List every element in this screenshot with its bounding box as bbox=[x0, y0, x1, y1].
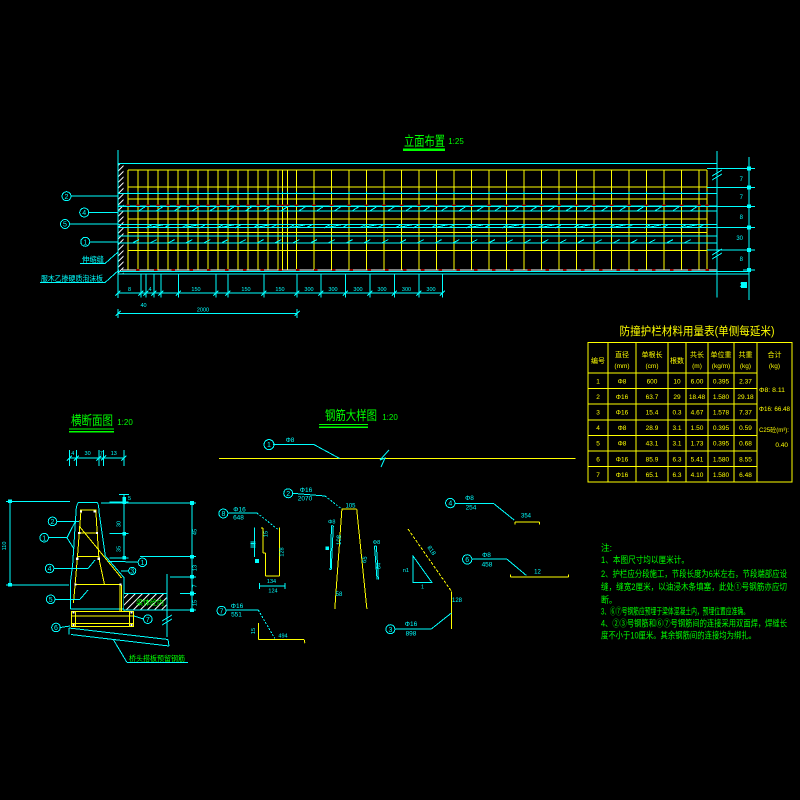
svg-text:6: 6 bbox=[54, 625, 58, 632]
svg-text:18.48: 18.48 bbox=[689, 394, 706, 401]
svg-text:Φ16: Φ16 bbox=[405, 621, 418, 628]
svg-text:1: 1 bbox=[421, 585, 424, 591]
svg-text:Φ8: Φ8 bbox=[373, 540, 380, 546]
svg-text:300: 300 bbox=[426, 287, 435, 293]
svg-text:0.395: 0.395 bbox=[713, 378, 730, 385]
svg-text:断。: 断。 bbox=[601, 594, 617, 605]
svg-text:15: 15 bbox=[251, 628, 257, 634]
svg-text:Φ8: Φ8 bbox=[465, 495, 474, 502]
svg-text:5.41: 5.41 bbox=[691, 456, 704, 463]
svg-text:2: 2 bbox=[65, 194, 69, 201]
svg-text:85.9: 85.9 bbox=[646, 456, 659, 463]
svg-text:35: 35 bbox=[117, 546, 123, 552]
svg-text:4.10: 4.10 bbox=[691, 472, 704, 479]
svg-text:30: 30 bbox=[85, 451, 91, 457]
svg-text:5: 5 bbox=[596, 441, 600, 448]
svg-text:8.55: 8.55 bbox=[739, 456, 752, 463]
svg-text:1: 1 bbox=[42, 535, 46, 542]
svg-text:1: 1 bbox=[596, 378, 600, 385]
svg-text:Φ16: Φ16 bbox=[616, 410, 629, 417]
svg-text:Φ16: Φ16 bbox=[231, 603, 244, 610]
svg-text:防撞护栏材料用量表(单侧每延米): 防撞护栏材料用量表(单侧每延米) bbox=[620, 324, 775, 338]
svg-text:(mm): (mm) bbox=[614, 363, 629, 370]
svg-text:124: 124 bbox=[268, 589, 277, 595]
svg-text:5: 5 bbox=[63, 222, 67, 229]
svg-text:6: 6 bbox=[596, 456, 600, 463]
svg-text:7: 7 bbox=[596, 472, 600, 479]
svg-text:缝，缝宽2厘米，以油浸木条填塞，此处①号钢筋亦应切: 缝，缝宽2厘米，以油浸木条填塞，此处①号钢筋亦应切 bbox=[601, 581, 787, 592]
svg-text:Φ8: Φ8 bbox=[618, 425, 627, 432]
svg-text:(kg): (kg) bbox=[769, 363, 780, 370]
svg-text:254: 254 bbox=[466, 505, 477, 512]
svg-text:4: 4 bbox=[448, 501, 452, 508]
svg-text:5: 5 bbox=[128, 496, 131, 502]
svg-text:40: 40 bbox=[140, 303, 146, 309]
svg-text:3、⑥⑦号钢筋应预埋于梁体混凝土内，预埋位置应准确。: 3、⑥⑦号钢筋应预埋于梁体混凝土内，预埋位置应准确。 bbox=[601, 606, 749, 617]
svg-text:0.40: 0.40 bbox=[775, 442, 788, 449]
svg-text:128: 128 bbox=[452, 598, 463, 604]
svg-text:0.59: 0.59 bbox=[739, 425, 752, 432]
svg-text:551: 551 bbox=[231, 612, 242, 619]
svg-text:Φ16: Φ16 bbox=[616, 472, 629, 479]
svg-text:29: 29 bbox=[673, 394, 681, 401]
svg-text:(cm): (cm) bbox=[646, 363, 659, 370]
svg-text:桥头搭板预留钢筋: 桥头搭板预留钢筋 bbox=[129, 653, 185, 663]
svg-text:30: 30 bbox=[117, 521, 123, 527]
svg-text:2: 2 bbox=[596, 394, 600, 401]
svg-text:10: 10 bbox=[673, 378, 681, 385]
svg-text:4: 4 bbox=[71, 451, 74, 457]
svg-text:编号: 编号 bbox=[591, 356, 605, 365]
svg-text:898: 898 bbox=[406, 631, 417, 638]
svg-text:7: 7 bbox=[220, 608, 224, 615]
svg-text:8: 8 bbox=[221, 511, 225, 518]
svg-text:1.580: 1.580 bbox=[713, 456, 730, 463]
svg-text:Φ16: Φ16 bbox=[300, 487, 313, 494]
svg-text:1: 1 bbox=[83, 239, 87, 246]
svg-text:1: 1 bbox=[140, 560, 144, 567]
svg-text:6.3: 6.3 bbox=[672, 472, 681, 479]
svg-text:84: 84 bbox=[376, 563, 382, 569]
svg-text:7.37: 7.37 bbox=[739, 410, 752, 417]
svg-text:1:20: 1:20 bbox=[382, 413, 398, 422]
svg-text:Φ8: Φ8 bbox=[328, 520, 335, 526]
svg-text:600: 600 bbox=[647, 378, 658, 385]
svg-text:150: 150 bbox=[191, 287, 200, 293]
svg-text:2: 2 bbox=[51, 519, 55, 526]
svg-text:1.50: 1.50 bbox=[691, 425, 704, 432]
svg-text:45: 45 bbox=[193, 529, 199, 535]
svg-text:1: 1 bbox=[267, 442, 271, 449]
svg-text:12: 12 bbox=[534, 570, 541, 576]
svg-text:Φ16: Φ16 bbox=[616, 456, 629, 463]
svg-text:4: 4 bbox=[596, 425, 600, 432]
svg-text:6.48: 6.48 bbox=[739, 472, 752, 479]
svg-text:648: 648 bbox=[233, 515, 244, 522]
svg-text:15.4: 15.4 bbox=[646, 410, 659, 417]
svg-text:4、②③号钢筋和⑥⑦号钢筋间的连接采用双面焊，焊缝长: 4、②③号钢筋和⑥⑦号钢筋间的连接采用双面焊，焊缝长 bbox=[601, 618, 787, 629]
svg-text:注:: 注: bbox=[601, 542, 612, 553]
svg-text:7: 7 bbox=[146, 617, 150, 624]
svg-text:2、护栏应分段施工，节段长度为6米左右，节段端部应设: 2、护栏应分段施工，节段长度为6米左右，节段端部应设 bbox=[601, 568, 787, 579]
svg-text:28.9: 28.9 bbox=[646, 425, 659, 432]
svg-text:3: 3 bbox=[130, 569, 134, 576]
svg-text:Φ16: 66.48: Φ16: 66.48 bbox=[759, 406, 790, 413]
svg-text:0.395: 0.395 bbox=[713, 425, 730, 432]
svg-text:1.73: 1.73 bbox=[691, 441, 704, 448]
svg-text:Φ8: Φ8 bbox=[286, 437, 295, 444]
svg-text:6.00: 6.00 bbox=[691, 378, 704, 385]
svg-text:合计: 合计 bbox=[768, 350, 782, 359]
svg-text:300: 300 bbox=[328, 287, 337, 293]
svg-text:108: 108 bbox=[337, 534, 343, 545]
svg-text:494: 494 bbox=[278, 634, 287, 640]
svg-text:29.18: 29.18 bbox=[737, 394, 754, 401]
svg-text:300: 300 bbox=[304, 287, 313, 293]
svg-text:1.580: 1.580 bbox=[713, 472, 730, 479]
svg-text:1.578: 1.578 bbox=[713, 410, 730, 417]
svg-text:1、本图尺寸均以厘米计。: 1、本图尺寸均以厘米计。 bbox=[601, 554, 689, 565]
svg-text:Φ16: Φ16 bbox=[616, 394, 629, 401]
svg-text:2000: 2000 bbox=[197, 308, 209, 314]
svg-text:300: 300 bbox=[402, 287, 411, 293]
svg-text:2.37: 2.37 bbox=[739, 378, 752, 385]
svg-text:服木乙掺硬质泡沫板: 服木乙掺硬质泡沫板 bbox=[41, 273, 103, 283]
svg-text:2070: 2070 bbox=[298, 496, 313, 503]
svg-text:直径: 直径 bbox=[615, 350, 629, 359]
svg-text:30: 30 bbox=[736, 236, 743, 242]
svg-text:150: 150 bbox=[275, 287, 284, 293]
svg-text:(kg/m): (kg/m) bbox=[712, 363, 730, 370]
svg-text:Φ8: Φ8 bbox=[618, 378, 627, 385]
svg-text:单根长: 单根长 bbox=[642, 350, 663, 359]
svg-text:Φ8: Φ8 bbox=[482, 552, 491, 559]
svg-text:横断面图: 横断面图 bbox=[71, 413, 113, 428]
svg-text:2: 2 bbox=[286, 491, 290, 498]
svg-text:15: 15 bbox=[193, 600, 199, 606]
svg-text:(m): (m) bbox=[692, 363, 702, 370]
svg-text:5: 5 bbox=[49, 597, 53, 604]
svg-text:0.3: 0.3 bbox=[672, 410, 681, 417]
svg-text:共长: 共长 bbox=[690, 350, 704, 359]
svg-text:3: 3 bbox=[596, 410, 600, 417]
svg-text:n1: n1 bbox=[403, 568, 409, 574]
svg-text:150: 150 bbox=[241, 287, 250, 293]
svg-text:65.1: 65.1 bbox=[646, 472, 659, 479]
svg-text:58: 58 bbox=[336, 592, 343, 598]
svg-text:300: 300 bbox=[377, 287, 386, 293]
svg-text:458: 458 bbox=[482, 562, 493, 569]
svg-text:1:25: 1:25 bbox=[448, 137, 464, 146]
svg-text:共重: 共重 bbox=[739, 350, 753, 359]
svg-text:43.1: 43.1 bbox=[646, 441, 659, 448]
svg-text:(kg): (kg) bbox=[740, 363, 751, 370]
svg-text:6.3: 6.3 bbox=[672, 456, 681, 463]
svg-text:13: 13 bbox=[193, 565, 199, 571]
svg-text:3.1: 3.1 bbox=[672, 441, 681, 448]
svg-text:度不小于10厘米。其余钢筋间的连接均为绑扎。: 度不小于10厘米。其余钢筋间的连接均为绑扎。 bbox=[601, 630, 756, 641]
svg-text:伸缩缝: 伸缩缝 bbox=[82, 254, 104, 264]
svg-text:根数: 根数 bbox=[670, 356, 684, 365]
svg-text:Φ8: 8.11: Φ8: 8.11 bbox=[759, 387, 785, 394]
svg-text:354: 354 bbox=[521, 514, 532, 520]
svg-text:4.67: 4.67 bbox=[691, 410, 704, 417]
svg-text:0.395: 0.395 bbox=[713, 441, 730, 448]
svg-text:13: 13 bbox=[111, 451, 117, 457]
svg-text:立面布置: 立面布置 bbox=[404, 134, 445, 149]
svg-text:Φ8: Φ8 bbox=[618, 441, 627, 448]
svg-text:4: 4 bbox=[148, 287, 151, 293]
svg-text:4: 4 bbox=[82, 210, 86, 217]
svg-text:105: 105 bbox=[345, 504, 356, 510]
svg-text:15: 15 bbox=[264, 531, 270, 537]
svg-text:3: 3 bbox=[388, 627, 392, 634]
svg-text:1.580: 1.580 bbox=[713, 394, 730, 401]
svg-text:C25砼(m³):: C25砼(m³): bbox=[759, 425, 789, 434]
svg-text:7: 7 bbox=[100, 451, 103, 457]
svg-text:134: 134 bbox=[267, 579, 276, 585]
svg-text:梁体砼内: 梁体砼内 bbox=[136, 597, 164, 607]
svg-text:4: 4 bbox=[48, 566, 52, 573]
svg-text:3.1: 3.1 bbox=[672, 425, 681, 432]
svg-text:单位重: 单位重 bbox=[711, 350, 732, 359]
svg-text:63.7: 63.7 bbox=[646, 394, 659, 401]
svg-text:6: 6 bbox=[465, 557, 469, 564]
svg-text:8: 8 bbox=[128, 287, 131, 293]
svg-text:110: 110 bbox=[2, 542, 8, 551]
svg-text:7: 7 bbox=[193, 584, 199, 587]
svg-text:钢筋大样图: 钢筋大样图 bbox=[325, 408, 377, 423]
svg-text:128: 128 bbox=[280, 547, 286, 556]
svg-text:0.68: 0.68 bbox=[739, 441, 752, 448]
svg-text:300: 300 bbox=[353, 287, 362, 293]
svg-text:1:20: 1:20 bbox=[117, 418, 133, 427]
